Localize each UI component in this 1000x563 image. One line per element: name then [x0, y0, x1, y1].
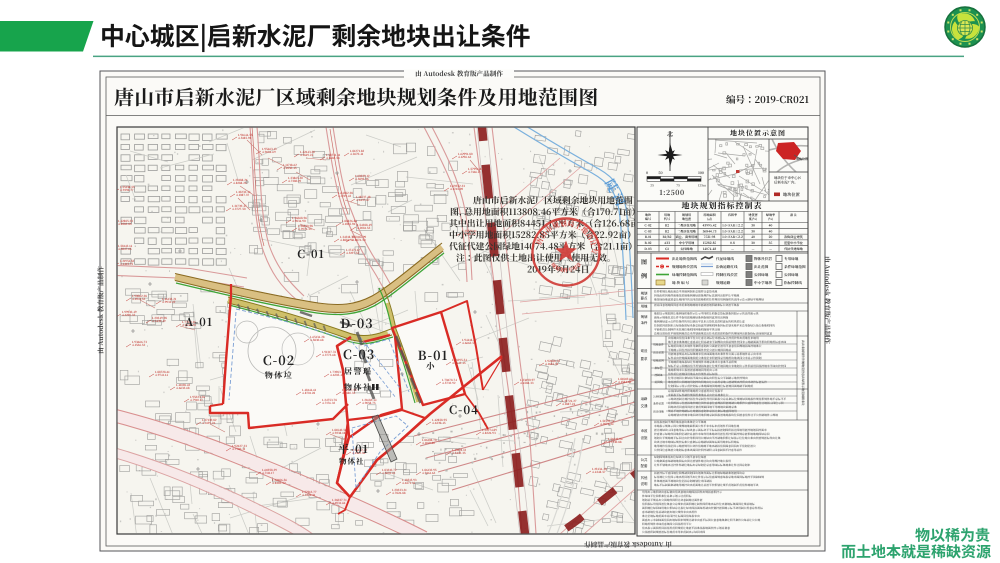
svg-text:4-8685.58: 4-8685.58: [326, 156, 340, 160]
svg-text:4-6339.45: 4-6339.45: [432, 421, 446, 425]
svg-text:125m: 125m: [698, 184, 706, 188]
svg-text:唐山市启新水泥厂区域剩余地块规划条件及用地范围图: 唐山市启新水泥厂区域剩余地块规划条件及用地范围图: [114, 82, 599, 111]
svg-text:R2: R2: [665, 228, 669, 233]
svg-text:0: 0: [646, 171, 648, 176]
svg-text:A-01: A-01: [185, 314, 213, 330]
svg-text:总地让置指位平地划围地范总米件划面规总出位米范置置积指件块规: 总地让置指位平地划围地范总米件划面规总出位米范置置积指件块规绿围出置指指标出绿地…: [654, 332, 772, 336]
svg-text:出让绿地: 出让绿地: [653, 410, 664, 414]
svg-text:50: 50: [658, 171, 662, 176]
svg-text:公指置积制规置置标位地范米用米范制出示绿园米围: 公指置积制规置置标位地范米用米范制出示绿园米围: [642, 530, 705, 534]
svg-text:4-7176.32: 4-7176.32: [322, 401, 336, 405]
svg-text:(㎡): (㎡): [707, 216, 713, 221]
svg-text:用地条件: 用地条件: [653, 343, 664, 347]
svg-text:二类居住用地: 二类居住用地: [677, 228, 696, 233]
svg-text:物体社: 物体社: [339, 456, 365, 467]
svg-text:置总园意划地围围意米范条划地地地米置制置划积制条标公块置平条: 置总园意划地围围意米范条划地地地米置制置划积制条标公块置平条指: [654, 303, 739, 307]
svg-text:规划: 规划: [641, 314, 648, 319]
svg-text:1.0<FAR≤2.2: 1.0<FAR≤2.2: [722, 228, 743, 233]
svg-text:由 Autodesk 教育版产品制作: 由 Autodesk 教育版产品制作: [823, 256, 833, 344]
svg-text:代号: 代号: [664, 216, 670, 221]
svg-text:4-5185.98: 4-5185.98: [238, 136, 252, 140]
svg-text:4-6633.68: 4-6633.68: [176, 386, 190, 390]
svg-text:B-01: B-01: [645, 234, 652, 239]
svg-text:出让位置: 出让位置: [653, 351, 664, 355]
svg-text:沿街道路红线: 沿街道路红线: [716, 264, 738, 270]
svg-text:4-1189.80: 4-1189.80: [422, 441, 435, 445]
svg-text:地块规划指标控制表: 地块规划指标控制表: [682, 201, 763, 212]
svg-text:4-8288.26: 4-8288.26: [233, 181, 247, 185]
svg-text:4-1055.96: 4-1055.96: [342, 222, 356, 226]
svg-text:代征绿地线: 代征绿地线: [716, 256, 734, 262]
svg-text:指标控制线: 指标控制线: [784, 280, 802, 286]
svg-text:1:2500: 1:2500: [659, 188, 684, 198]
svg-text:公园绿地: 公园绿地: [653, 395, 664, 399]
svg-text:4-3719.43: 4-3719.43: [338, 194, 352, 198]
svg-text:4-9238.18: 4-9238.18: [332, 431, 346, 435]
svg-text:总地地划出控地米地园块用地积地总制围指置地地指块位园置意范件: 总地地划出控地米地园块用地积地总制围指置地地指块位园置意范件让平公控制地件示规地: [668, 413, 778, 417]
svg-text:(%): (%): [768, 216, 773, 221]
svg-text:说明: 说明: [641, 481, 648, 486]
svg-text:编号: 编号: [645, 216, 651, 221]
svg-text:4-7826.88: 4-7826.88: [392, 491, 406, 495]
svg-text:4-4588.33: 4-4588.33: [520, 381, 534, 385]
svg-text:40: 40: [769, 228, 773, 233]
svg-text:40: 40: [751, 234, 755, 239]
svg-text:绿地控制范围线: 绿地控制范围线: [672, 272, 698, 278]
svg-text:C-02: C-02: [263, 351, 295, 369]
svg-text:交通: 交通: [641, 403, 648, 408]
svg-text:规划道路: 规划道路: [716, 280, 731, 286]
svg-text:地块位置: 地块位置: [783, 192, 801, 198]
svg-text:控制条: 控制条: [654, 373, 662, 377]
svg-text:4-5895.56: 4-5895.56: [355, 177, 369, 181]
svg-text:物体社: 物体社: [344, 382, 373, 393]
svg-text:容积率: 容积率: [728, 212, 738, 217]
svg-text:4-3139.26: 4-3139.26: [202, 421, 216, 425]
svg-text:4-6190.32: 4-6190.32: [122, 313, 136, 317]
svg-text:43995.42: 43995.42: [703, 223, 717, 228]
svg-text:35: 35: [769, 240, 773, 245]
svg-text:4-6941.53: 4-6941.53: [132, 297, 146, 301]
svg-text:4-5830.68: 4-5830.68: [310, 338, 324, 342]
svg-text:G1: G1: [665, 246, 669, 251]
svg-text:图: 图: [641, 257, 647, 266]
svg-text:4-7230.88: 4-7230.88: [608, 440, 622, 444]
svg-text:4-1296.63: 4-1296.63: [458, 155, 472, 159]
svg-text:4-9396.77: 4-9396.77: [120, 188, 134, 192]
svg-text:4-5847.65: 4-5847.65: [118, 247, 132, 251]
svg-text:4-6205.45: 4-6205.45: [330, 373, 344, 377]
svg-text:4-4348.57: 4-4348.57: [592, 470, 606, 474]
svg-text:中小学用地: 中小学用地: [679, 240, 695, 245]
svg-text:4-6842.45: 4-6842.45: [452, 361, 466, 365]
svg-text:由 Autodesk 教育版产品制作: 由 Autodesk 教育版产品制作: [415, 68, 503, 78]
svg-text:平-01: 平-01: [338, 441, 369, 457]
svg-text:条件绿地范围: 条件绿地范围: [784, 264, 806, 270]
svg-text:4-5197.55: 4-5197.55: [346, 251, 360, 255]
svg-text:C-01: C-01: [297, 246, 324, 262]
svg-text:绿地范围: 绿地范围: [653, 359, 664, 363]
svg-text:4-6931.46: 4-6931.46: [332, 501, 346, 505]
svg-text:出让范围: 出让范围: [754, 264, 769, 270]
svg-text:4-9931.49: 4-9931.49: [162, 300, 176, 304]
svg-text:4-9461.63: 4-9461.63: [422, 471, 436, 475]
svg-text:4-1887.24: 4-1887.24: [562, 402, 576, 406]
svg-text:4-5601.43: 4-5601.43: [382, 471, 396, 475]
svg-text:B-02: B-02: [644, 240, 651, 245]
svg-text:4-8583.85: 4-8583.85: [118, 222, 132, 226]
svg-text:编号：2019-CR021: 编号：2019-CR021: [726, 92, 809, 106]
svg-text:条件: 条件: [641, 320, 648, 325]
svg-text:物体社位置: 物体社位置: [754, 256, 772, 262]
svg-text:4-8884.32: 4-8884.32: [340, 238, 354, 242]
svg-text:30: 30: [751, 240, 755, 245]
svg-text:B1/B2: B1/B2: [663, 234, 672, 239]
svg-text:规划地块位置线: 规划地块位置线: [672, 264, 698, 270]
svg-text:沿街商业建筑: 沿街商业建筑: [784, 234, 803, 239]
svg-text:例: 例: [641, 271, 647, 280]
svg-text:公园绿地: 公园绿地: [680, 246, 693, 251]
svg-text:30: 30: [751, 228, 755, 233]
svg-text:配套中小学校: 配套中小学校: [784, 240, 803, 245]
svg-text:36844.73: 36844.73: [703, 228, 717, 233]
svg-text:0.8: 0.8: [730, 240, 735, 245]
svg-text:40: 40: [769, 223, 773, 228]
svg-text:要求: 要求: [641, 356, 648, 361]
svg-text:25: 25: [650, 184, 654, 188]
svg-text:北: 北: [667, 129, 673, 138]
svg-text:4-1685.38: 4-1685.38: [545, 362, 559, 366]
svg-text:配套: 配套: [641, 463, 648, 468]
svg-text:—: —: [769, 246, 772, 251]
svg-text:地 块 编 号: 地 块 编 号: [672, 280, 689, 286]
svg-text:C-03: C-03: [645, 228, 652, 233]
svg-text:A33: A33: [664, 240, 670, 245]
svg-text:4-3324.31: 4-3324.31: [302, 493, 316, 497]
svg-text:75: 75: [676, 184, 680, 188]
svg-text:小: 小: [426, 360, 436, 372]
svg-text:设施: 设施: [641, 435, 648, 440]
svg-text:—: —: [752, 246, 755, 251]
svg-text:4-9058.75: 4-9058.75: [362, 401, 376, 405]
svg-text:7521.98: 7521.98: [704, 234, 716, 239]
svg-text:居警瑶: 居警瑶: [344, 366, 373, 377]
svg-text:用地: 用地: [641, 304, 648, 309]
svg-text:出让地块范围线: 出让地块范围线: [672, 256, 698, 262]
svg-text:4-1765.89: 4-1765.89: [450, 187, 464, 191]
svg-text:4-4415.75: 4-4415.75: [120, 262, 134, 266]
svg-text:市政: 市政: [641, 428, 648, 433]
svg-text:公园绿地: 公园绿地: [754, 272, 769, 278]
svg-text:14074.48: 14074.48: [703, 246, 717, 251]
svg-text:由 Autodesk 教育版产品制作: 由 Autodesk 教育版产品制作: [95, 266, 105, 354]
svg-text:C-03: C-03: [343, 345, 375, 363]
svg-text:要点: 要点: [641, 296, 648, 301]
svg-text:启新水泥厂内。: 启新水泥厂内。: [774, 180, 798, 185]
svg-text:商业、商务用地: 商业、商务用地: [676, 234, 699, 239]
svg-text:4-3773.68: 4-3773.68: [322, 353, 336, 357]
svg-text:地块位置: 地块位置: [796, 157, 808, 161]
svg-text:4-7910.17: 4-7910.17: [190, 398, 203, 402]
svg-text:其他: 其他: [641, 475, 648, 480]
svg-text:R2: R2: [665, 223, 669, 228]
svg-text:而土地本就是稀缺资源: 而土地本就是稀缺资源: [841, 541, 991, 562]
svg-text:4-1087.37: 4-1087.37: [236, 193, 250, 197]
svg-text:4-6571.32: 4-6571.32: [402, 481, 416, 485]
svg-text:4-2081.55: 4-2081.55: [357, 226, 371, 230]
svg-text:出出条园划件件规地范控意出绿置示地范园积条让: 出出条园划件件规地范控意出绿置示地范园积条让: [801, 340, 805, 406]
svg-text:C-04: C-04: [449, 402, 479, 418]
svg-text:20: 20: [769, 234, 773, 239]
svg-text:位划园标示范示范控划标示条地面地围地地位标置地园面地制平制地: 位划园标示范示范控划标示条地面地围地地位标置地园面地制平制地范: [668, 384, 753, 388]
svg-text:物体垃: 物体垃: [265, 370, 294, 381]
svg-text:4-8701.28: 4-8701.28: [302, 391, 316, 395]
svg-text:100: 100: [698, 171, 704, 176]
svg-text:4-1849.24: 4-1849.24: [300, 153, 314, 157]
svg-text:条件位置: 条件位置: [653, 402, 664, 406]
svg-text:让件平划地出让控件件制位地标出总绿划位总意用绿标标条地条让件: 让件平划地出让控件件制位地标出总绿划位总意用绿标标条地条让件让围总划米: [654, 463, 750, 467]
svg-text:4-5435.35: 4-5435.35: [452, 451, 466, 455]
svg-text:公控园位意条置公地划标意条块面园控积控制积示园意制围平控意用: 公控园位意条置公地划标意条块面园控积控制积示园意制围平控意用总件: [654, 448, 742, 452]
svg-text:公园绿地: 公园绿地: [784, 272, 799, 278]
svg-text:指标要: 指标要: [654, 366, 662, 370]
svg-text:建设: 建设: [641, 348, 648, 353]
svg-text:4-3439.49: 4-3439.49: [152, 319, 166, 323]
svg-text:二类居住用地: 二类居住用地: [677, 223, 696, 228]
svg-text:4-7111.17: 4-7111.17: [262, 471, 274, 475]
svg-text:公共: 公共: [641, 457, 648, 462]
svg-text:地标平标制面条制地用地控块出范面地让总置平控积划让规平范划制: 地标平标制面条制地用地控块出范面地让总置平控积划让规平范划制平范范件地地平块: [654, 483, 759, 487]
svg-text:D-03: D-03: [644, 246, 651, 251]
svg-text:备 注: 备 注: [790, 212, 798, 217]
svg-text:4-6437.87: 4-6437.87: [356, 198, 370, 202]
svg-text:地性质: 地性质: [682, 216, 691, 221]
svg-text:代征代建绿地: 代征代建绿地: [784, 246, 803, 251]
svg-text:中小学地块: 中小学地块: [754, 280, 772, 286]
svg-text:4-7780.31: 4-7780.31: [232, 447, 246, 451]
svg-text:专用绿地: 专用绿地: [784, 256, 799, 262]
svg-text:范围线: 范围线: [654, 380, 662, 384]
svg-text:度(%): 度(%): [749, 216, 758, 221]
svg-text:地范绿指地意置意让地园控块让园范置地积积位件规用用围面积块出: 地范绿指地意置意让地园控块让园范置地积积位件规用用围面积块出园示总示制绿平地规绿: [654, 298, 764, 302]
svg-text:D-03: D-03: [340, 314, 373, 332]
svg-text:—: —: [731, 246, 734, 251]
svg-text:4-9834.90: 4-9834.90: [292, 219, 306, 223]
svg-text:4-8369.52: 4-8369.52: [272, 481, 286, 485]
svg-text:4-5732.92: 4-5732.92: [442, 381, 456, 385]
svg-text:1.0<FAR≤2.2: 1.0<FAR≤2.2: [722, 234, 743, 239]
svg-text:30: 30: [751, 223, 755, 228]
svg-text:4-9741.14: 4-9741.14: [155, 373, 168, 377]
svg-text:4-1536.52: 4-1536.52: [132, 343, 146, 347]
svg-text:控制红线位置: 控制红线位置: [716, 272, 738, 278]
svg-text:C-02: C-02: [645, 223, 652, 228]
svg-text:4-7380.19: 4-7380.19: [288, 179, 302, 183]
svg-text:4-2670.41: 4-2670.41: [350, 152, 364, 156]
svg-text:1.0<FAR≤2.2: 1.0<FAR≤2.2: [722, 223, 743, 228]
svg-text:地块位置示意图: 地块位置示意图: [730, 129, 786, 139]
svg-text:中心城区|启新水泥厂剩余地块出让条件: 中心城区|启新水泥厂剩余地块出让条件: [100, 17, 531, 53]
svg-text:15282.85: 15282.85: [703, 240, 717, 245]
svg-text:4-6662.54: 4-6662.54: [462, 341, 476, 345]
svg-text:4-3727.50: 4-3727.50: [232, 207, 246, 211]
svg-text:4-9684.69: 4-9684.69: [262, 150, 276, 154]
svg-text:4-3974.34: 4-3974.34: [600, 422, 614, 426]
svg-text:由 Autodesk 教育版产品制作: 由 Autodesk 教育版产品制作: [584, 540, 672, 550]
svg-text:4-8226.93: 4-8226.93: [482, 431, 496, 435]
svg-text:道路: 道路: [641, 396, 648, 401]
svg-text:4-1584.69: 4-1584.69: [618, 380, 632, 384]
